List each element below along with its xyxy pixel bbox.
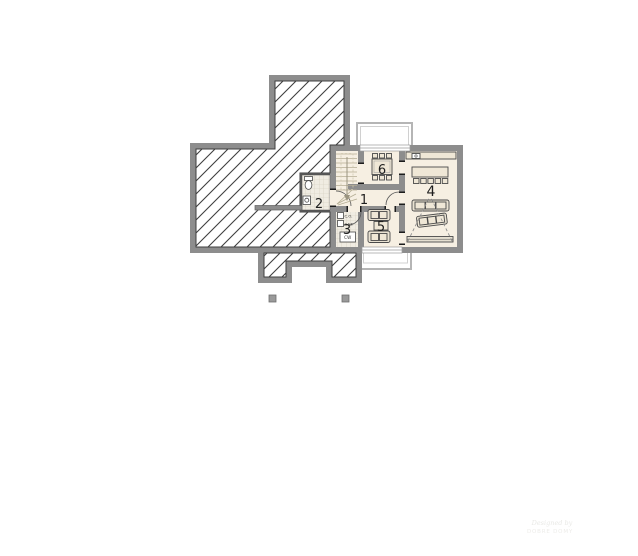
chair	[428, 179, 434, 184]
room-4-label: 4	[427, 184, 436, 200]
watermark-line2: DOBRE DOMY	[527, 529, 573, 535]
room-1-label: 1	[360, 193, 368, 208]
floor-plan-svg: 1 2 3 4 5 6 C.O. GAZ CW Designed by DOBR…	[0, 0, 638, 556]
room-5-label: 5	[377, 220, 385, 235]
co-label: C.O.	[345, 214, 353, 219]
chair	[414, 179, 420, 184]
column	[342, 295, 349, 302]
floor-plan-page: 1 2 3 4 5 6 C.O. GAZ CW Designed by DOBR…	[0, 0, 638, 556]
chair	[373, 154, 378, 159]
table	[412, 167, 448, 177]
sofa	[412, 200, 449, 211]
chair	[380, 154, 385, 159]
watermark: Designed by DOBRE DOMY	[527, 519, 573, 535]
room-6-label: 6	[378, 163, 386, 178]
wall-stub	[255, 206, 302, 211]
chair	[421, 179, 427, 184]
chair	[387, 176, 392, 181]
wash-basin	[303, 196, 311, 205]
chair	[373, 176, 378, 181]
room-2-label: 2	[315, 197, 323, 212]
cw-label: CW	[344, 235, 351, 240]
boiler-box-co	[338, 213, 344, 219]
terrace-window-top	[360, 145, 410, 151]
watermark-line1: Designed by	[531, 519, 573, 527]
chair	[387, 154, 392, 159]
chair	[442, 179, 448, 184]
kitchen-sink	[412, 154, 420, 159]
toilet	[305, 177, 313, 190]
terrace-window-bottom	[362, 247, 402, 253]
column	[269, 295, 276, 302]
chair	[435, 179, 441, 184]
gaz-label: GAZ	[345, 222, 354, 227]
